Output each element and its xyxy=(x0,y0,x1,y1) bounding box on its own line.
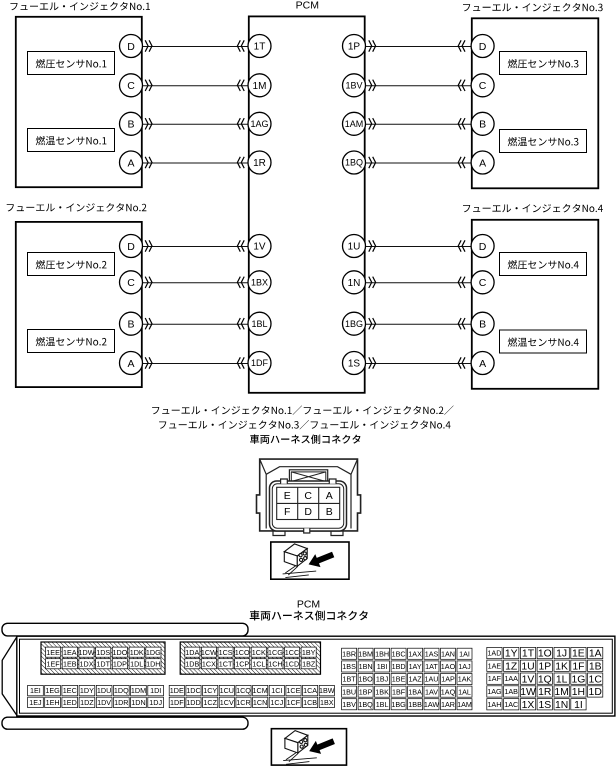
svg-text:1DG: 1DG xyxy=(146,648,161,657)
svg-text:1CY: 1CY xyxy=(203,686,217,695)
svg-text:1H: 1H xyxy=(572,687,585,698)
svg-text:1AG: 1AG xyxy=(487,687,502,696)
svg-text:1AP: 1AP xyxy=(441,675,455,684)
svg-text:1AZ: 1AZ xyxy=(409,675,423,684)
svg-text:1DL: 1DL xyxy=(130,659,143,668)
svg-text:1BV: 1BV xyxy=(345,81,362,91)
svg-text:1BR: 1BR xyxy=(342,649,356,658)
svg-text:1BK: 1BK xyxy=(375,687,389,696)
svg-text:1AF: 1AF xyxy=(488,674,502,683)
svg-text:1U: 1U xyxy=(348,242,361,253)
svg-text:1DY: 1DY xyxy=(80,686,94,695)
svg-text:1AQ: 1AQ xyxy=(441,687,456,696)
svg-text:1M: 1M xyxy=(554,687,568,698)
svg-text:1CW: 1CW xyxy=(201,648,217,657)
svg-text:1DP: 1DP xyxy=(113,659,127,668)
svg-text:1AV: 1AV xyxy=(425,687,438,696)
svg-text:1DD: 1DD xyxy=(186,698,200,707)
svg-text:B: B xyxy=(479,119,486,131)
svg-text:1BB: 1BB xyxy=(408,700,422,709)
svg-text:1BJ: 1BJ xyxy=(376,675,389,684)
svg-text:1V: 1V xyxy=(253,242,266,253)
svg-text:1D: 1D xyxy=(589,687,602,698)
svg-text:1BO: 1BO xyxy=(358,675,373,684)
svg-text:1AN: 1AN xyxy=(441,649,455,658)
svg-text:1CP: 1CP xyxy=(235,659,249,668)
svg-text:1CV: 1CV xyxy=(220,698,234,707)
svg-text:C: C xyxy=(479,277,487,289)
svg-text:1CU: 1CU xyxy=(220,686,234,695)
svg-text:1DH: 1DH xyxy=(146,659,160,668)
svg-text:1X: 1X xyxy=(522,700,535,711)
svg-text:1DA: 1DA xyxy=(185,648,199,657)
svg-text:B: B xyxy=(326,506,333,518)
svg-text:1AX: 1AX xyxy=(408,649,422,658)
svg-text:1AC: 1AC xyxy=(504,700,518,709)
svg-text:1DJ: 1DJ xyxy=(149,698,162,707)
svg-text:A: A xyxy=(479,157,486,169)
svg-text:1BZ: 1BZ xyxy=(302,659,316,668)
svg-text:1BX: 1BX xyxy=(251,278,268,288)
svg-text:1BL: 1BL xyxy=(251,319,267,329)
svg-text:1BV: 1BV xyxy=(342,700,356,709)
svg-text:1AY: 1AY xyxy=(409,662,422,671)
svg-text:C: C xyxy=(127,80,135,92)
svg-text:1Z: 1Z xyxy=(505,662,518,673)
svg-text:1CE: 1CE xyxy=(286,686,300,695)
svg-text:1EA: 1EA xyxy=(63,648,77,657)
svg-text:1EJ: 1EJ xyxy=(29,698,42,707)
svg-text:1AL: 1AL xyxy=(458,687,471,696)
svg-text:1DO: 1DO xyxy=(113,648,128,657)
svg-text:1EE: 1EE xyxy=(46,648,60,657)
svg-text:1Y: 1Y xyxy=(505,649,518,660)
svg-text:1F: 1F xyxy=(572,662,584,673)
svg-text:1AI: 1AI xyxy=(459,649,470,658)
svg-text:1BE: 1BE xyxy=(392,675,406,684)
svg-text:1CA: 1CA xyxy=(303,686,317,695)
svg-text:1DV: 1DV xyxy=(97,698,111,707)
svg-text:1BY: 1BY xyxy=(302,648,316,657)
svg-text:1BD: 1BD xyxy=(392,662,406,671)
svg-text:1CL: 1CL xyxy=(252,659,265,668)
svg-text:1CR: 1CR xyxy=(236,698,250,707)
svg-text:1AS: 1AS xyxy=(425,649,439,658)
svg-text:1R: 1R xyxy=(538,687,552,698)
svg-text:1AM: 1AM xyxy=(345,119,364,129)
svg-text:1BG: 1BG xyxy=(391,700,406,709)
svg-text:1BA: 1BA xyxy=(408,687,422,696)
svg-text:1S: 1S xyxy=(538,700,551,711)
svg-text:1DQ: 1DQ xyxy=(114,686,129,695)
svg-text:1R: 1R xyxy=(253,158,266,169)
svg-text:1DK: 1DK xyxy=(130,648,144,657)
svg-text:1DI: 1DI xyxy=(150,686,161,695)
svg-text:C: C xyxy=(127,277,135,289)
svg-text:A: A xyxy=(127,358,134,370)
svg-text:1C: 1C xyxy=(589,674,603,685)
svg-text:1CN: 1CN xyxy=(253,698,267,707)
svg-text:1AB: 1AB xyxy=(504,687,518,696)
svg-text:D: D xyxy=(304,506,312,518)
svg-text:1J: 1J xyxy=(556,649,567,660)
svg-text:1DF: 1DF xyxy=(251,358,269,368)
svg-text:1I: 1I xyxy=(574,700,583,711)
svg-text:1BQ: 1BQ xyxy=(358,700,373,709)
svg-text:1CH: 1CH xyxy=(268,659,282,668)
svg-text:1DX: 1DX xyxy=(80,659,94,668)
svg-text:1K: 1K xyxy=(555,662,568,673)
svg-text:1AE: 1AE xyxy=(488,661,502,670)
svg-text:1DZ: 1DZ xyxy=(80,698,94,707)
svg-text:1BC: 1BC xyxy=(392,649,406,658)
svg-text:A: A xyxy=(127,157,134,169)
svg-text:1BU: 1BU xyxy=(342,687,356,696)
svg-text:1DM: 1DM xyxy=(131,686,146,695)
svg-text:1E: 1E xyxy=(572,649,585,660)
svg-text:1BP: 1BP xyxy=(359,687,373,696)
svg-text:1DS: 1DS xyxy=(96,648,110,657)
svg-text:1DU: 1DU xyxy=(97,686,111,695)
svg-text:1Q: 1Q xyxy=(538,674,552,685)
svg-text:1O: 1O xyxy=(538,649,552,660)
svg-text:D: D xyxy=(127,41,135,53)
svg-text:1B: 1B xyxy=(589,662,602,673)
svg-text:1CB: 1CB xyxy=(303,698,317,707)
svg-text:1DC: 1DC xyxy=(186,686,200,695)
svg-text:1CZ: 1CZ xyxy=(203,698,217,707)
svg-text:1CO: 1CO xyxy=(235,648,250,657)
svg-text:1ED: 1ED xyxy=(63,698,77,707)
svg-text:1CT: 1CT xyxy=(219,659,233,668)
svg-text:1BQ: 1BQ xyxy=(345,158,363,168)
svg-text:PCM: PCM xyxy=(296,0,319,12)
svg-text:F: F xyxy=(284,506,290,518)
svg-text:1EB: 1EB xyxy=(63,659,77,668)
svg-text:C: C xyxy=(479,80,487,92)
svg-text:1CJ: 1CJ xyxy=(270,698,283,707)
svg-text:1AJ: 1AJ xyxy=(458,662,471,671)
svg-text:E: E xyxy=(284,490,291,502)
svg-text:1AU: 1AU xyxy=(425,675,439,684)
svg-text:1BI: 1BI xyxy=(377,662,388,671)
svg-text:1AD: 1AD xyxy=(487,649,501,658)
svg-text:1BX: 1BX xyxy=(320,698,334,707)
svg-text:1CM: 1CM xyxy=(253,686,268,695)
svg-text:D: D xyxy=(479,41,487,53)
svg-text:1CF: 1CF xyxy=(287,698,301,707)
svg-text:1BG: 1BG xyxy=(345,319,363,329)
svg-text:1EG: 1EG xyxy=(45,686,60,695)
svg-text:1N: 1N xyxy=(348,278,361,289)
svg-text:1DN: 1DN xyxy=(131,698,145,707)
svg-text:1EC: 1EC xyxy=(63,686,77,695)
svg-text:1P: 1P xyxy=(348,42,361,53)
svg-text:1G: 1G xyxy=(571,674,585,685)
svg-text:1BM: 1BM xyxy=(358,649,373,658)
svg-text:1DF: 1DF xyxy=(170,698,184,707)
svg-text:D: D xyxy=(127,241,135,253)
svg-text:1EF: 1EF xyxy=(47,659,61,668)
svg-text:1V: 1V xyxy=(522,674,535,685)
svg-text:B: B xyxy=(479,319,486,331)
svg-text:1CG: 1CG xyxy=(268,648,283,657)
svg-text:1P: 1P xyxy=(538,662,551,673)
svg-text:1AM: 1AM xyxy=(457,700,472,709)
svg-text:1U: 1U xyxy=(521,662,534,673)
svg-text:1BN: 1BN xyxy=(359,662,373,671)
svg-text:1CS: 1CS xyxy=(219,648,233,657)
svg-text:1DT: 1DT xyxy=(96,659,110,668)
svg-text:1W: 1W xyxy=(520,687,536,698)
svg-text:D: D xyxy=(479,241,487,253)
svg-text:1AO: 1AO xyxy=(441,662,456,671)
svg-text:1BW: 1BW xyxy=(319,686,335,695)
svg-text:1DW: 1DW xyxy=(79,648,95,657)
svg-text:1BT: 1BT xyxy=(343,675,357,684)
svg-text:1AK: 1AK xyxy=(458,675,472,684)
svg-text:1DR: 1DR xyxy=(114,698,128,707)
svg-text:A: A xyxy=(479,358,486,370)
svg-text:1AG: 1AG xyxy=(250,119,268,129)
svg-text:B: B xyxy=(127,119,134,131)
svg-text:1DE: 1DE xyxy=(170,686,184,695)
svg-text:1EI: 1EI xyxy=(30,686,41,695)
svg-text:1CD: 1CD xyxy=(285,659,299,668)
svg-text:1BL: 1BL xyxy=(376,700,389,709)
svg-text:1AH: 1AH xyxy=(487,700,501,709)
svg-text:1CX: 1CX xyxy=(202,659,216,668)
svg-text:PCM: PCM xyxy=(297,599,320,611)
svg-text:B: B xyxy=(127,319,134,331)
svg-text:1L: 1L xyxy=(556,674,568,685)
svg-text:1DB: 1DB xyxy=(185,659,199,668)
svg-text:1EH: 1EH xyxy=(46,698,60,707)
svg-text:1T: 1T xyxy=(522,649,535,660)
svg-text:1BH: 1BH xyxy=(375,649,389,658)
svg-text:1CQ: 1CQ xyxy=(236,686,251,695)
svg-text:1CC: 1CC xyxy=(285,648,299,657)
svg-text:1AA: 1AA xyxy=(504,674,518,683)
svg-text:1M: 1M xyxy=(253,81,267,92)
svg-text:1T: 1T xyxy=(254,42,266,53)
svg-text:1AW: 1AW xyxy=(424,700,440,709)
svg-text:1AR: 1AR xyxy=(441,700,455,709)
svg-text:1N: 1N xyxy=(555,700,568,711)
svg-text:1A: 1A xyxy=(589,649,602,660)
svg-text:1BF: 1BF xyxy=(392,687,406,696)
svg-text:1S: 1S xyxy=(348,359,361,370)
svg-text:1CI: 1CI xyxy=(271,686,282,695)
svg-text:C: C xyxy=(304,490,312,502)
svg-text:1AT: 1AT xyxy=(425,662,438,671)
svg-text:A: A xyxy=(326,490,333,502)
svg-text:1BS: 1BS xyxy=(342,662,356,671)
svg-text:1CK: 1CK xyxy=(252,648,266,657)
